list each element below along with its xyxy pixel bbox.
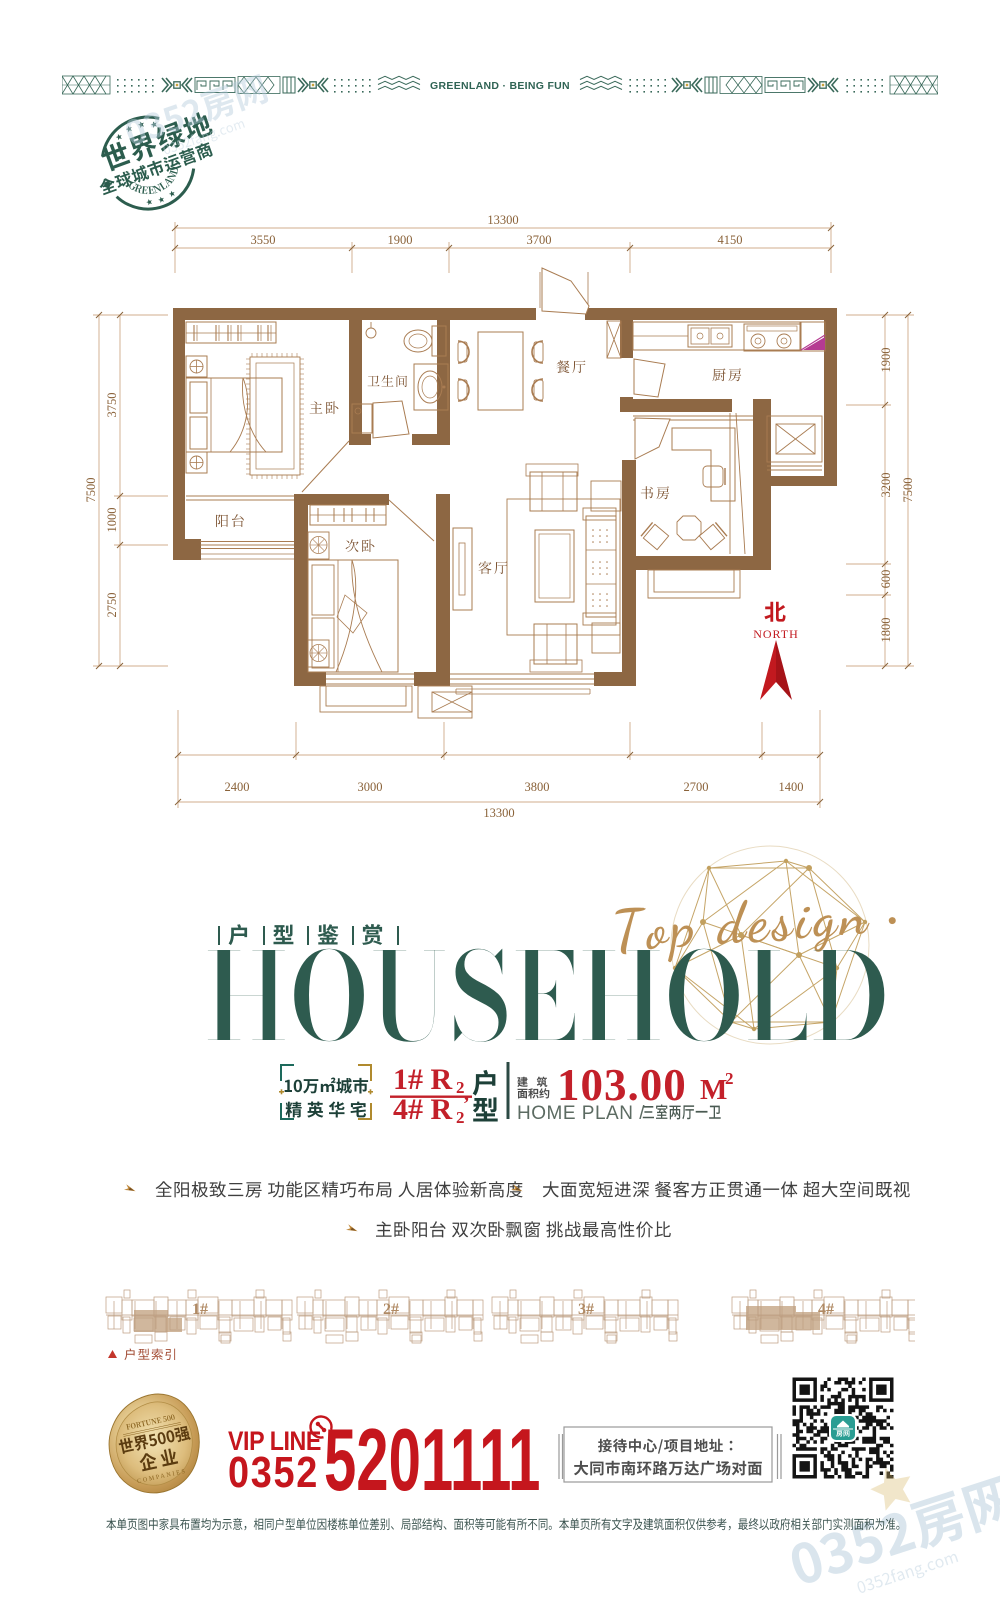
- svg-text:HOME PLAN /: HOME PLAN /: [517, 1103, 645, 1124]
- svg-text:2700: 2700: [684, 780, 709, 794]
- svg-text:1800: 1800: [879, 618, 893, 643]
- svg-text:1#: 1#: [192, 1301, 208, 1318]
- svg-text:13300: 13300: [483, 806, 514, 820]
- svg-text:7500: 7500: [901, 478, 915, 503]
- svg-text:1900: 1900: [388, 233, 413, 247]
- svg-text:3750: 3750: [105, 393, 119, 418]
- svg-text:600: 600: [879, 570, 893, 589]
- svg-text:3800: 3800: [525, 780, 550, 794]
- svg-text:1400: 1400: [779, 780, 804, 794]
- svg-text:3700: 3700: [527, 233, 552, 247]
- svg-text:3000: 3000: [358, 780, 383, 794]
- svg-text:4150: 4150: [718, 233, 743, 247]
- svg-text:1900: 1900: [879, 348, 893, 373]
- svg-text:2750: 2750: [105, 593, 119, 618]
- svg-text:7500: 7500: [84, 478, 98, 503]
- svg-text:GREENLAND · BEING FUN: GREENLAND · BEING FUN: [430, 80, 570, 92]
- svg-text:13300: 13300: [487, 213, 518, 227]
- svg-text:3550: 3550: [251, 233, 276, 247]
- svg-text:1000: 1000: [105, 508, 119, 533]
- svg-text:3200: 3200: [879, 473, 893, 498]
- svg-text:2#: 2#: [383, 1301, 399, 1318]
- svg-text:2: 2: [725, 1069, 734, 1088]
- svg-text:2400: 2400: [225, 780, 250, 794]
- svg-text:M: M: [700, 1074, 727, 1106]
- svg-text:4#: 4#: [818, 1301, 834, 1318]
- svg-text:3#: 3#: [578, 1301, 594, 1318]
- svg-text:0352: 0352: [228, 1447, 319, 1496]
- svg-text:NORTH: NORTH: [753, 627, 799, 641]
- svg-text:4# R: 4# R: [393, 1093, 453, 1126]
- svg-text:5201111: 5201111: [324, 1411, 540, 1509]
- svg-text:1# R: 1# R: [393, 1063, 453, 1096]
